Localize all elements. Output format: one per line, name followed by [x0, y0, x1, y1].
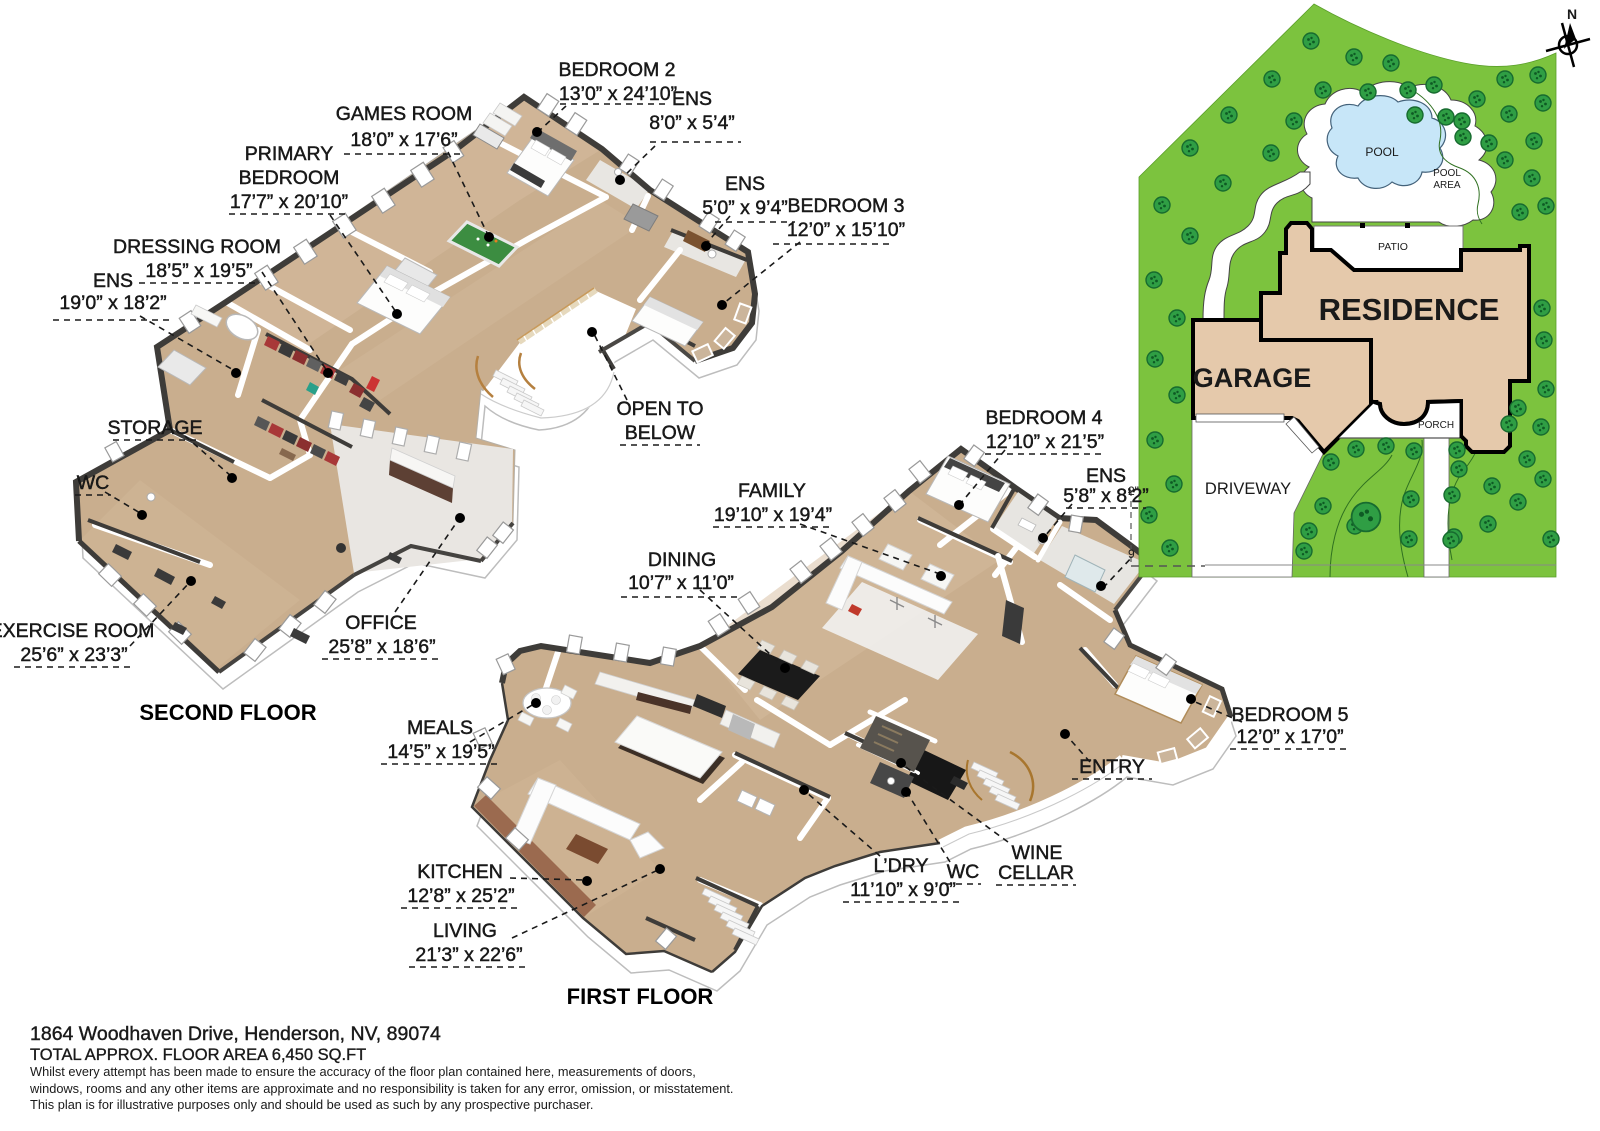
svg-text:STORAGE: STORAGE [108, 417, 203, 439]
svg-text:18’5” x 19’5”: 18’5” x 19’5” [145, 260, 252, 282]
svg-text:WC: WC [947, 861, 980, 883]
svg-text:1864 Woodhaven Drive, Henderso: 1864 Woodhaven Drive, Henderson, NV, 890… [30, 1023, 441, 1045]
svg-text:17’7” x 20’10”: 17’7” x 20’10” [230, 191, 348, 213]
svg-text:windows, rooms and any other i: windows, rooms and any other items are a… [29, 1081, 733, 1096]
svg-text:L’DRY: L’DRY [874, 855, 929, 877]
svg-text:19’10” x 19’4”: 19’10” x 19’4” [714, 504, 832, 526]
svg-text:5’8” x 8’2”: 5’8” x 8’2” [1063, 485, 1149, 507]
svg-text:14’5” x 19’5”: 14’5” x 19’5” [387, 741, 494, 763]
svg-text:ENTRY: ENTRY [1079, 756, 1145, 778]
svg-text:KITCHEN: KITCHEN [417, 861, 503, 883]
svg-text:LIVING: LIVING [433, 920, 497, 942]
svg-text:13’0” x 24’10”: 13’0” x 24’10” [559, 83, 677, 105]
svg-text:GARAGE: GARAGE [1193, 363, 1312, 393]
svg-text:Whilst every attempt has been: Whilst every attempt has been made to en… [30, 1064, 696, 1079]
svg-text:BELOW: BELOW [625, 422, 696, 444]
svg-text:FAMILY: FAMILY [738, 480, 806, 502]
svg-text:AREA: AREA [1433, 180, 1461, 191]
svg-text:BEDROOM 5: BEDROOM 5 [1231, 704, 1348, 726]
svg-text:DINING: DINING [648, 549, 716, 571]
svg-text:10’7” x 11’0”: 10’7” x 11’0” [628, 572, 734, 594]
svg-text:RESIDENCE: RESIDENCE [1319, 292, 1500, 327]
svg-text:25’6” x 23’3”: 25’6” x 23’3” [20, 644, 127, 666]
svg-text:SECOND FLOOR: SECOND FLOOR [139, 700, 316, 725]
svg-text:9: 9 [1128, 547, 1135, 561]
svg-text:ENS: ENS [672, 88, 712, 110]
svg-text:PRIMARY: PRIMARY [245, 143, 334, 165]
svg-text:25’8” x 18’6”: 25’8” x 18’6” [328, 636, 435, 658]
svg-text:PORCH: PORCH [1418, 420, 1454, 431]
svg-text:21’3” x 22’6”: 21’3” x 22’6” [415, 944, 522, 966]
svg-text:This plan is for illustrative: This plan is for illustrative purposes o… [30, 1097, 593, 1112]
svg-text:BEDROOM 4: BEDROOM 4 [985, 407, 1102, 429]
svg-text:OFFICE: OFFICE [345, 612, 417, 634]
svg-text:MEALS: MEALS [407, 717, 473, 739]
svg-text:FIRST FLOOR: FIRST FLOOR [567, 984, 714, 1009]
svg-text:N: N [1567, 6, 1577, 22]
svg-text:12’0” x 15’10”: 12’0” x 15’10” [787, 219, 905, 241]
svg-text:POOL: POOL [1433, 168, 1461, 179]
svg-text:18’0” x 17’6”: 18’0” x 17’6” [350, 129, 457, 151]
svg-text:GAMES ROOM: GAMES ROOM [336, 103, 473, 125]
svg-text:BEDROOM: BEDROOM [239, 167, 340, 189]
svg-text:POOL: POOL [1365, 145, 1399, 159]
svg-text:ENS: ENS [93, 270, 133, 292]
svg-text:12’8” x 25’2”: 12’8” x 25’2” [407, 885, 514, 907]
svg-text:BEDROOM 3: BEDROOM 3 [787, 195, 904, 217]
svg-text:12’0” x 17’0”: 12’0” x 17’0” [1236, 726, 1343, 748]
svg-text:DRIVEWAY: DRIVEWAY [1205, 480, 1291, 498]
svg-text:OPEN TO: OPEN TO [616, 398, 703, 420]
svg-text:TOTAL APPROX. FLOOR AREA 6,450: TOTAL APPROX. FLOOR AREA 6,450 SQ.FT [30, 1046, 366, 1064]
svg-text:BEDROOM 2: BEDROOM 2 [558, 59, 675, 81]
svg-text:19’0” x 18’2”: 19’0” x 18’2” [59, 292, 166, 314]
svg-text:ENS: ENS [1086, 465, 1126, 487]
svg-text:8’0” x 5’4”: 8’0” x 5’4” [649, 112, 735, 134]
svg-text:WINE: WINE [1012, 842, 1063, 864]
svg-text:PATIO: PATIO [1378, 241, 1408, 253]
svg-text:11’10” x 9’0”: 11’10” x 9’0” [850, 879, 956, 901]
svg-text:CELLAR: CELLAR [998, 862, 1074, 884]
svg-text:WC: WC [77, 472, 110, 494]
svg-text:ENS: ENS [725, 173, 765, 195]
svg-text:5’0” x 9’4”: 5’0” x 9’4” [702, 197, 788, 219]
svg-text:DRESSING ROOM: DRESSING ROOM [113, 236, 281, 258]
svg-text:12’10” x 21’5”: 12’10” x 21’5” [986, 431, 1104, 453]
svg-text:EXERCISE ROOM: EXERCISE ROOM [0, 620, 154, 642]
